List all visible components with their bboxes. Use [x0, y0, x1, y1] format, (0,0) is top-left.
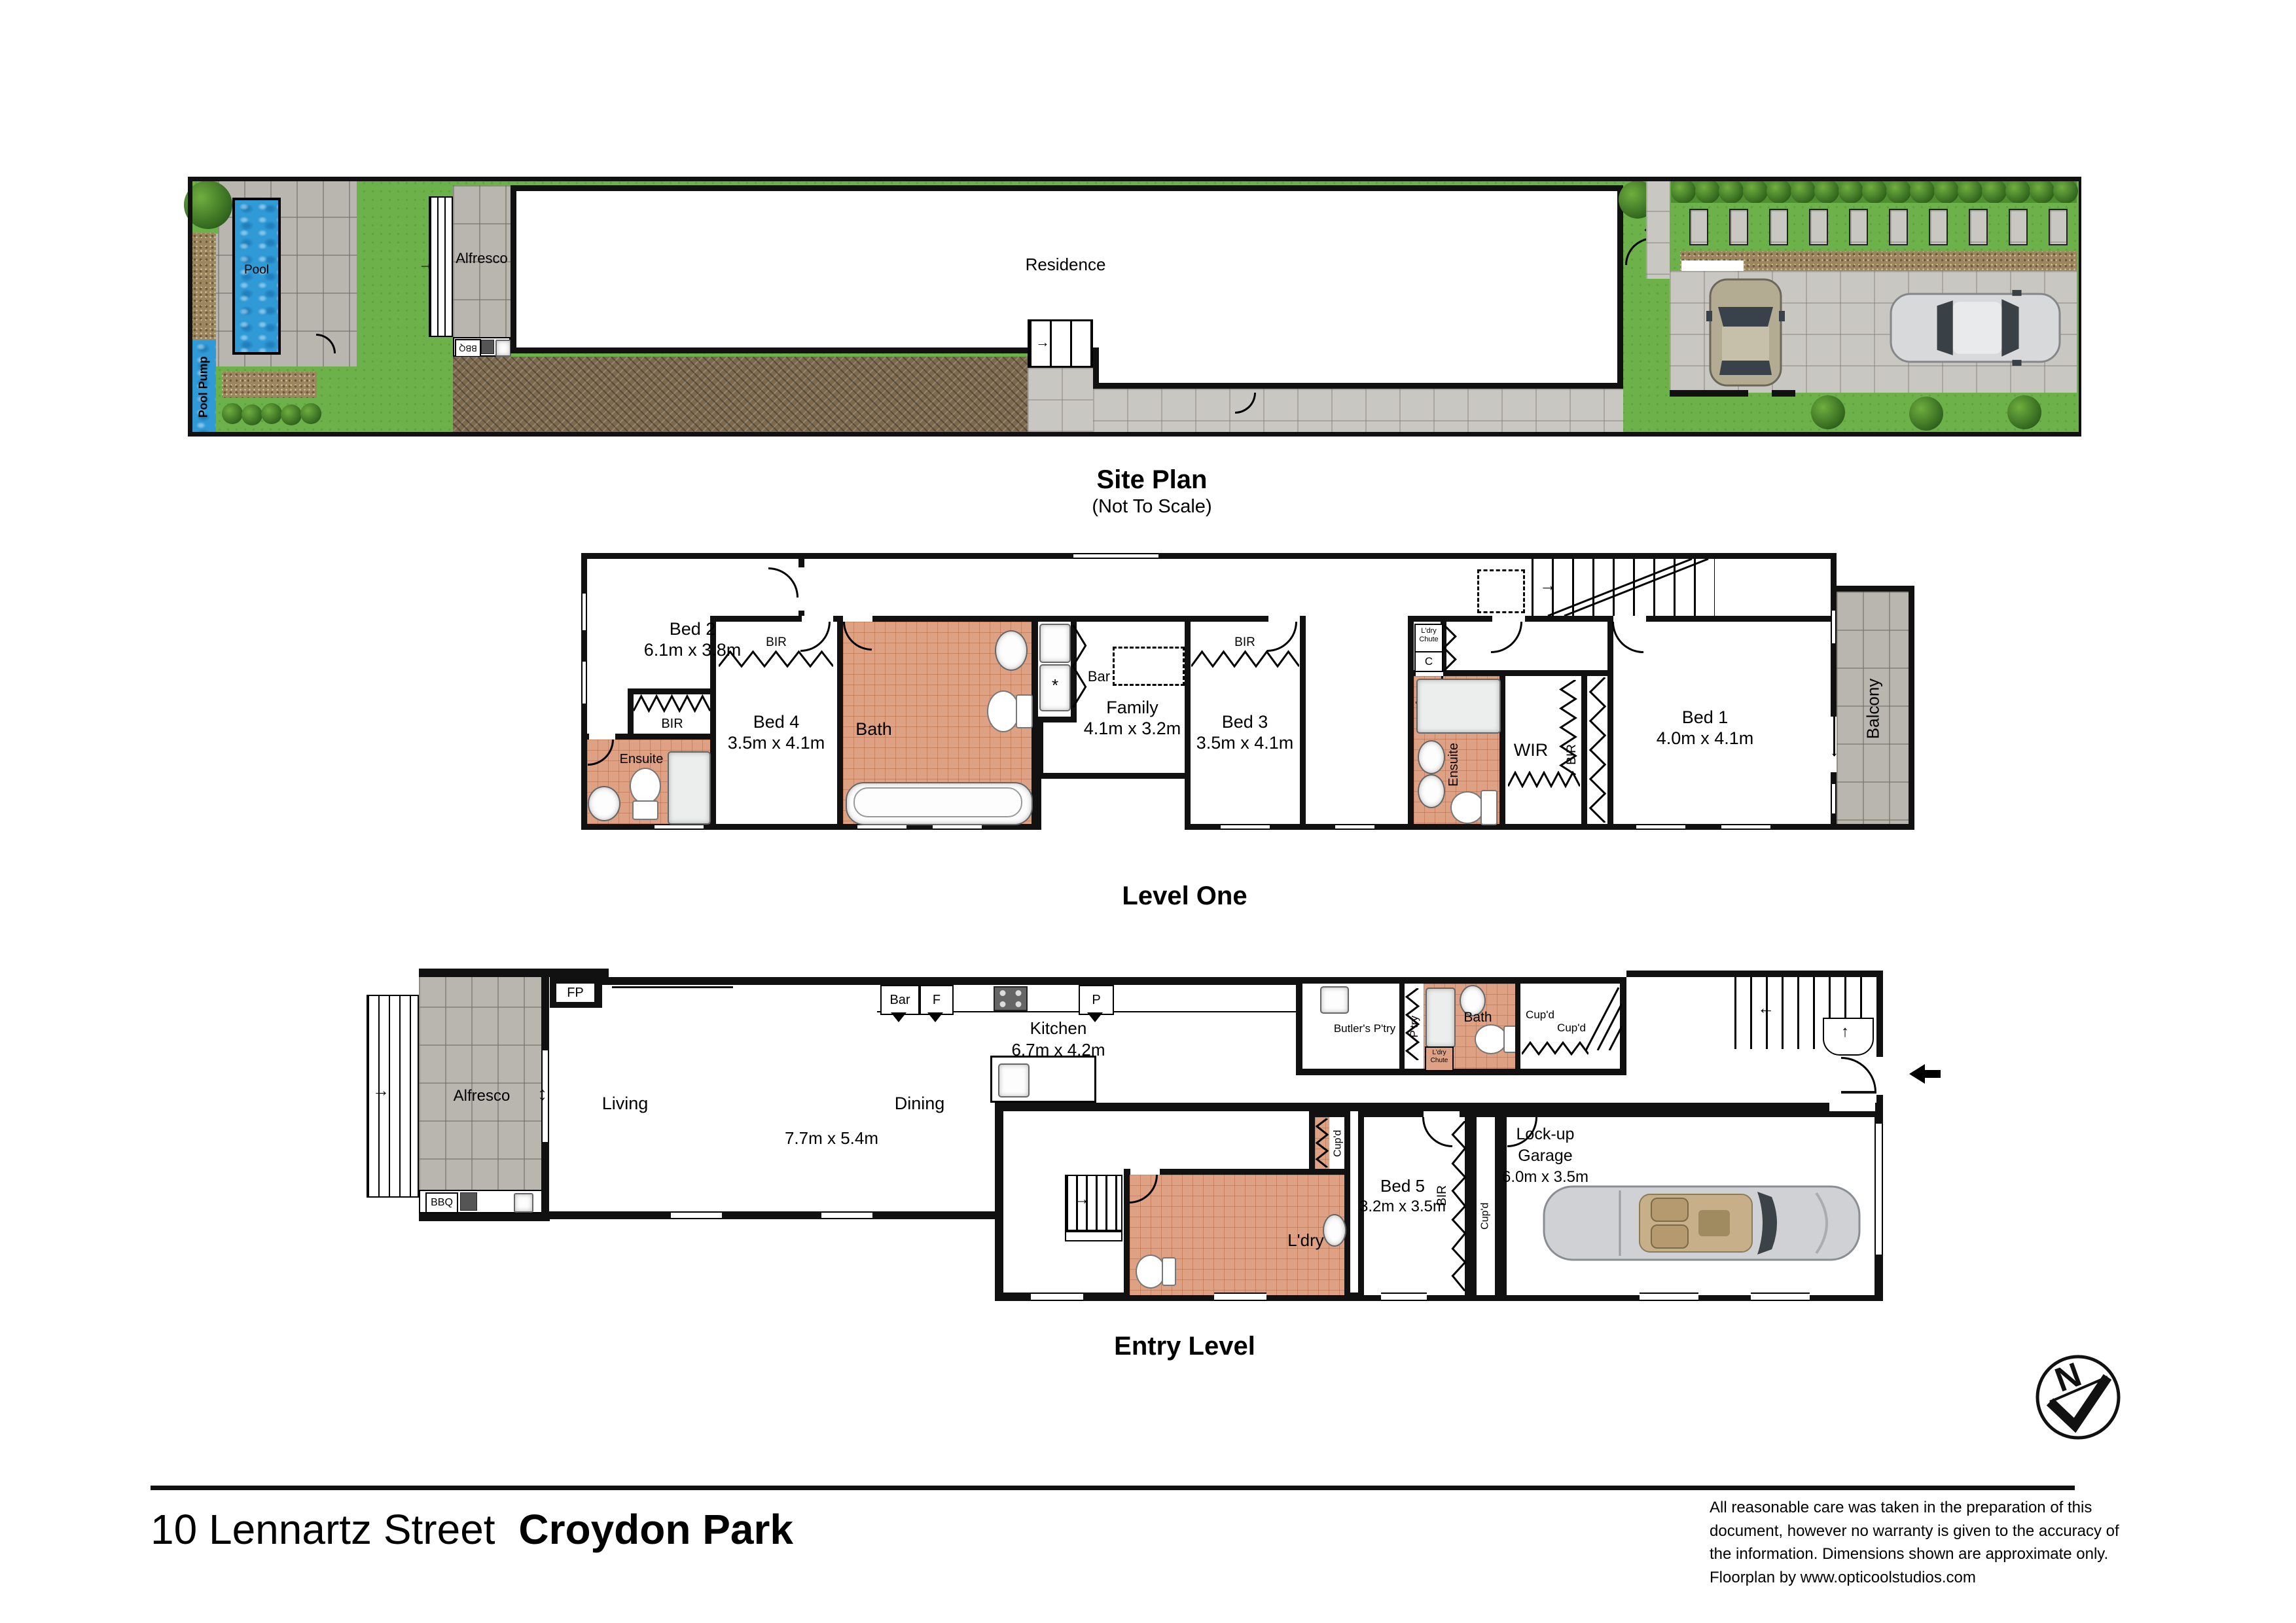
hedge-bush-icon: [1839, 179, 1863, 204]
door-gap: [1268, 616, 1300, 622]
cupd-label: Cup'd: [1480, 1202, 1492, 1229]
bir1-label-box: BIR: [1564, 730, 1580, 779]
butlers-sink-icon: [1320, 986, 1349, 1014]
bed1-dims: 4.0m x 4.1m: [1623, 728, 1787, 749]
bed4-dims: 3.5m x 4.1m: [711, 733, 842, 753]
hedge-bush-icon: [1934, 179, 1959, 204]
site-border-top: [188, 177, 2081, 181]
cupd-label: Cup'd: [1333, 1130, 1344, 1156]
el-steps-arrow-icon: →: [372, 1080, 389, 1101]
island-sink-icon: [998, 1063, 1030, 1097]
door-gap: [1613, 616, 1646, 622]
entry-arrow-stem: [1924, 1070, 1941, 1078]
hedge-bush-icon: [1886, 179, 1911, 204]
pool-label: Pool: [232, 263, 281, 277]
pebble-strip-left: [192, 233, 216, 340]
family-dims: 4.1m x 3.2m: [1067, 719, 1198, 739]
wall: [602, 977, 1299, 985]
paver-bar: [1769, 209, 1788, 245]
front-path: [1646, 179, 1670, 279]
bar-chevron: [1071, 625, 1087, 707]
door-gap: [802, 616, 833, 622]
bar-sink-icon: [1039, 624, 1071, 663]
hedge-bush-icon: [2005, 179, 2030, 204]
window: [1214, 1293, 1266, 1301]
wall: [1876, 977, 1883, 1057]
bed5-bir-label-box: BIR: [1435, 1175, 1450, 1217]
cupd-strip-label-box: Cup'd: [1476, 1193, 1496, 1239]
cupd-zigzag: [1554, 1041, 1588, 1056]
hedge-bush-icon: [1862, 179, 1887, 204]
door-gap: [589, 734, 615, 740]
toilet-icon: [1475, 1024, 1507, 1054]
floorplan-page: Pool Pump Pool → Alfresco BBQ Residence …: [0, 0, 2296, 1623]
toilet-tank: [1162, 1257, 1176, 1286]
window: [1031, 1293, 1083, 1301]
bir-label: BIR: [1206, 635, 1284, 650]
front-door-leaf: [1841, 1091, 1876, 1094]
wall: [541, 1211, 1003, 1219]
window: [1073, 553, 1158, 559]
entry-stairs-arrow-icon: ←: [1757, 998, 1774, 1018]
car-hatchback: [1890, 289, 2061, 366]
family-void-box: [1113, 647, 1185, 686]
window: [1636, 824, 1685, 830]
butlers-label: Butler's P'try: [1332, 1022, 1397, 1037]
corridor-gap: [1829, 1103, 1875, 1111]
wall: [1525, 616, 1610, 622]
bed3-label: Bed 3: [1186, 712, 1304, 732]
paver-bar: [1849, 209, 1868, 245]
site-border-left: [188, 177, 192, 435]
shrub-icon: [300, 403, 321, 424]
ensuite-label: Ensuite: [1446, 743, 1462, 787]
wall: [1831, 553, 1837, 616]
paver-bar: [1889, 209, 1908, 245]
window: [1721, 824, 1770, 830]
address: 10 Lennartz Street Croydon Park: [151, 1505, 793, 1554]
wall: [1399, 984, 1405, 1069]
address-street: 10 Lennartz Street: [151, 1506, 495, 1553]
pool-pump-label: Pool Pump: [197, 356, 211, 418]
notch-void: [1041, 779, 1185, 830]
living-label: Living: [579, 1094, 671, 1114]
window: [1831, 784, 1837, 813]
window: [581, 662, 587, 704]
toilet-tank: [1016, 694, 1033, 728]
shrub-icon: [1909, 397, 1943, 431]
site-stairs-arrow-icon: →: [1035, 334, 1050, 351]
wall: [419, 1213, 550, 1221]
window: [655, 824, 704, 830]
stairs-cut-line: [1532, 559, 1715, 616]
chute-door-zigzag: [1443, 625, 1457, 671]
landing-up-arrow-icon: ↑: [1841, 1023, 1849, 1041]
hedge-bush-icon: [1671, 179, 1696, 204]
pool-pump-label-box: Pool Pump: [190, 342, 217, 432]
wall: [1515, 984, 1520, 1069]
site-sink-icon: [495, 340, 511, 357]
hedge-bush-icon: [1719, 179, 1744, 204]
el-bbq-label: BBQ: [425, 1192, 458, 1213]
door-gap: [843, 616, 872, 622]
boundary-stub: [1670, 390, 1748, 397]
void-dashed-box: [1477, 569, 1525, 613]
chevron-icon: [927, 1012, 943, 1022]
el-stove-icon: [460, 1192, 477, 1211]
site-plan-subtitle: (Not To Scale): [1014, 496, 1289, 518]
toilet-tank: [1480, 790, 1498, 825]
site-alfresco-label: Alfresco: [448, 250, 515, 266]
disclaimer: All reasonable care was taken in the pre…: [1710, 1496, 2128, 1589]
el-sink-icon: [514, 1193, 533, 1213]
el-chute-label: L'dry Chute: [1425, 1046, 1454, 1071]
paver-bar: [2049, 209, 2068, 245]
bir-label: BIR: [1565, 744, 1579, 765]
dining-label: Dining: [874, 1094, 965, 1114]
window: [1221, 824, 1270, 830]
site-bbq-label: BBQ: [455, 339, 481, 357]
site-plan-title: Site Plan: [1014, 465, 1289, 495]
footer-rule: [151, 1486, 2075, 1490]
steps-arrow-icon: →: [418, 255, 434, 274]
wall: [1626, 971, 1883, 977]
bar-box: Bar: [880, 985, 920, 1015]
corner-stairs: [1586, 984, 1622, 1050]
cupd-zigzag-vertical: [1316, 1118, 1329, 1168]
hedge-bush-icon: [1814, 179, 1839, 204]
wall: [995, 1103, 1883, 1111]
ensuite-label: Ensuite: [603, 752, 679, 767]
hedge-bush-icon: [2053, 179, 2078, 204]
living-dims: 7.7m x 5.4m: [781, 1129, 882, 1149]
el-mid-stairs-arrow-icon: →: [1074, 1190, 1090, 1209]
shrub-icon: [1811, 395, 1845, 429]
wall: [1414, 616, 1492, 622]
cupd-label: Cup'd: [1553, 1022, 1590, 1035]
wall: [419, 969, 609, 977]
bed4-label: Bed 4: [717, 712, 835, 732]
window: [1640, 1293, 1698, 1301]
chevron-icon: [891, 1012, 906, 1022]
boundary-stub: [1772, 390, 1795, 397]
hedge-bush-icon: [2030, 179, 2054, 204]
wall: [1035, 773, 1191, 779]
robe-zigzag: [1191, 650, 1299, 668]
wir-label: WIR: [1501, 740, 1561, 760]
el-mid-landing: [1065, 1231, 1122, 1241]
toilet-icon: [1450, 791, 1484, 824]
ldry-label: L'dry: [1273, 1231, 1338, 1251]
window: [1751, 1293, 1810, 1301]
slider-arrow-icon: ↕: [537, 1083, 547, 1105]
hedge-bush-icon: [1791, 179, 1816, 204]
bathtub-inner: [853, 787, 1022, 817]
fridge-box: F: [920, 985, 954, 1015]
wall: [995, 1103, 1003, 1301]
site-border-bottom: [188, 432, 2081, 437]
door-gap: [1130, 1169, 1160, 1175]
level-one-title: Level One: [1047, 881, 1322, 911]
bed3-dims: 3.5m x 4.1m: [1179, 733, 1310, 753]
paver-bar: [1809, 209, 1828, 245]
window: [1335, 824, 1374, 830]
bir-label: BIR: [636, 717, 708, 732]
shrub-icon: [2007, 395, 2041, 429]
window: [1381, 1293, 1427, 1301]
ptry-label: P'try: [1408, 1016, 1421, 1037]
hedge-bush-icon: [1767, 179, 1791, 204]
paver-bar: [2009, 209, 2028, 245]
paver-bar: [1729, 209, 1748, 245]
paver-bar: [1929, 209, 1948, 245]
cupd-label-box: Cup'd: [1331, 1121, 1346, 1166]
site-border-right: [2079, 177, 2081, 435]
north-compass-icon: N: [2029, 1348, 2127, 1446]
bir-label: BIR: [737, 635, 816, 650]
wall: [1185, 779, 1191, 830]
shrub-icon: [242, 404, 262, 425]
window: [1831, 611, 1837, 643]
hedge-bush-icon: [1695, 179, 1720, 204]
garage-door: [1874, 1124, 1883, 1255]
cooktop-icon: [994, 986, 1028, 1011]
bath-label: Bath: [841, 719, 906, 740]
balcony-label-box: Balcony: [1854, 663, 1893, 755]
entry-level-plan: → Alfresco BBQ ↕ FP Bar F P Kitchen 6.7m…: [363, 952, 1934, 1309]
residence-passage: [1099, 344, 1617, 357]
shower-icon: [1416, 679, 1501, 734]
level-one-plan: → ↓: [576, 552, 1918, 837]
bed5-label: Bed 5: [1363, 1177, 1442, 1196]
entry-level-title: Entry Level: [1047, 1331, 1322, 1361]
basin-icon: [588, 786, 620, 821]
cupboard-label: C: [1414, 651, 1443, 672]
ptry-label-box: P'try: [1407, 1006, 1422, 1048]
hedge-bush-icon: [1958, 179, 1982, 204]
el-alfresco-label: Alfresco: [444, 1087, 520, 1105]
window-line: [612, 986, 733, 988]
residence-label: Residence: [1000, 255, 1131, 275]
brown-pavers: [453, 357, 1028, 433]
basin-icon: [1418, 740, 1445, 774]
balcony-arrow-icon: ↓: [1830, 740, 1839, 760]
shrub-icon: [222, 403, 243, 424]
hedge-bush-icon: [1910, 179, 1935, 204]
family-label: Family: [1073, 698, 1191, 718]
shower-icon: [1426, 988, 1456, 1048]
shrub-icon: [281, 404, 302, 425]
cupd-zigzag: [1522, 1041, 1556, 1056]
window: [821, 1211, 872, 1219]
hedge-bush-icon: [1743, 179, 1768, 204]
balcony-label: Balcony: [1863, 679, 1883, 740]
basin-icon: [1418, 774, 1445, 808]
bed1-label: Bed 1: [1630, 707, 1780, 728]
toilet-icon: [987, 690, 1020, 732]
toilet-icon: [630, 768, 661, 804]
hedge-bush-icon: [1982, 179, 2007, 204]
fp-label: FP: [556, 984, 594, 1002]
garage-label: Lock-up Garage: [1502, 1124, 1588, 1166]
pebble-strip-below-pool: [222, 372, 317, 398]
site-stove-icon: [481, 340, 494, 354]
bir-label: BIR: [1435, 1185, 1450, 1206]
kitchen-label: Kitchen: [1013, 1019, 1104, 1039]
robe-zigzag-vertical: [1451, 1121, 1467, 1291]
hall-door-arc: [1491, 622, 1522, 653]
side-path: [1028, 368, 1093, 433]
address-suburb: Croydon Park: [518, 1506, 793, 1553]
l1-stairs-arrow-icon: →: [1539, 575, 1556, 596]
wall: [1035, 779, 1041, 830]
paver-lawn: [1671, 203, 2077, 251]
site-plan: Pool Pump Pool → Alfresco BBQ Residence …: [188, 177, 2081, 437]
door-gap: [798, 567, 804, 611]
robe-zigzag: [634, 694, 710, 713]
wall: [581, 553, 1837, 559]
window: [581, 594, 587, 630]
front-door-arc: [1841, 1057, 1876, 1092]
bar-fridge-icon: *: [1039, 664, 1071, 711]
ensuite2-label-box: Ensuite: [1445, 736, 1462, 793]
cupd-label: Cup'd: [1522, 1008, 1558, 1022]
chute-label: L'dry Chute: [1414, 624, 1443, 653]
car-suv: [1706, 276, 1785, 389]
entry-arrow-icon: [1909, 1064, 1925, 1084]
shrub-icon: [261, 403, 282, 424]
door-gap: [1424, 1111, 1460, 1117]
door-gap: [1492, 616, 1525, 622]
paver-bar: [1689, 209, 1708, 245]
hedge-row: [1671, 179, 2077, 203]
car-convertible: [1541, 1180, 1862, 1266]
basin-icon: [995, 630, 1028, 671]
rear-walkway: [1093, 389, 1623, 433]
window: [671, 1211, 722, 1219]
robe-zigzag-vertical: [1588, 677, 1607, 823]
el-bath-label: Bath: [1455, 1010, 1501, 1026]
toilet-tank: [632, 800, 658, 820]
pantry-box: P: [1079, 985, 1114, 1015]
paver-bar: [1969, 209, 1988, 245]
